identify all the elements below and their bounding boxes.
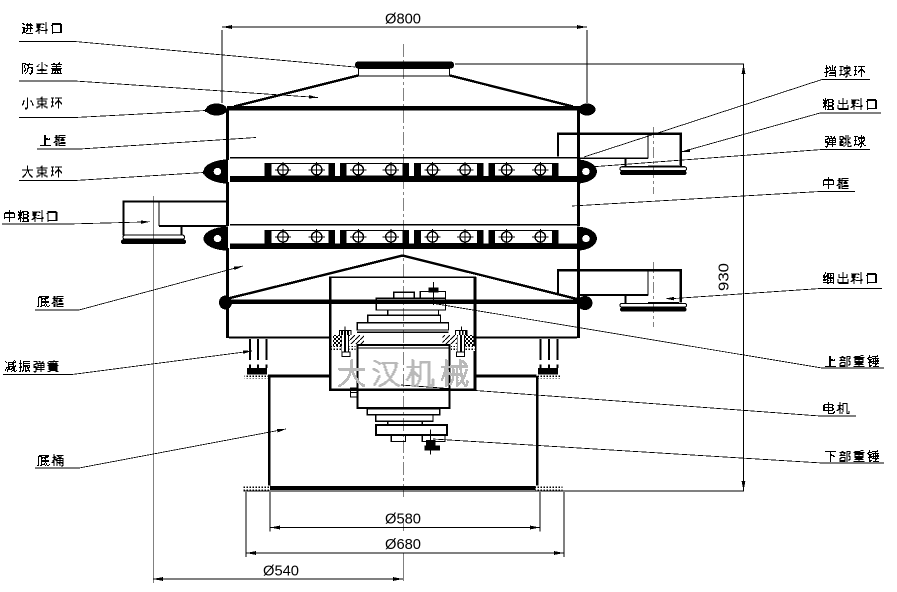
svg-text:Ø800: Ø800 [385,11,421,28]
svg-text:Ø580: Ø580 [385,511,421,528]
svg-text:Ø540: Ø540 [263,563,299,580]
svg-text:930: 930 [716,263,733,291]
svg-text:Ø680: Ø680 [385,536,421,553]
